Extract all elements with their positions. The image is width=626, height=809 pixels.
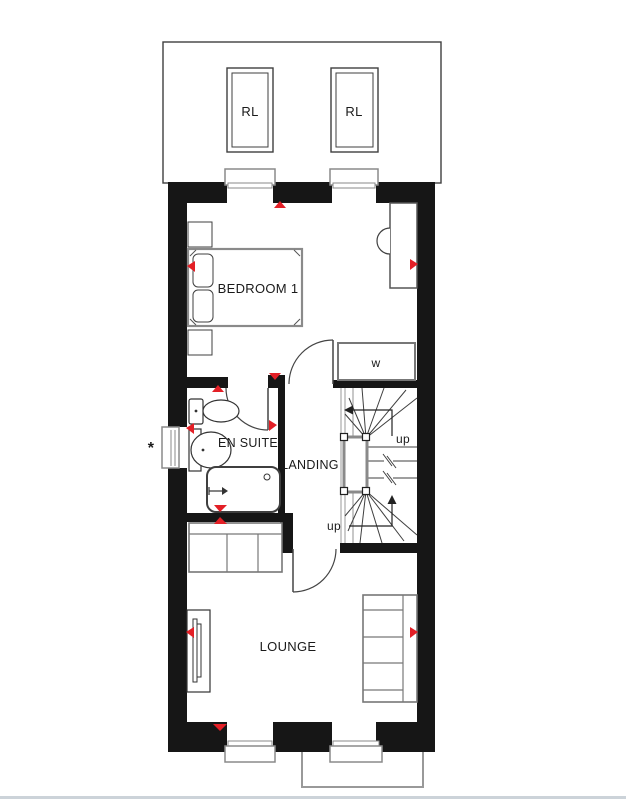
window-note-asterisk: *	[148, 440, 155, 457]
sofa-right	[363, 595, 417, 702]
wardrobe-label: w	[371, 356, 381, 370]
tv-unit	[187, 610, 210, 692]
floor-plan-page: RL RL	[0, 0, 626, 809]
marker-landing-wall	[269, 420, 277, 431]
stairs: up up	[327, 388, 417, 543]
ensuite-label: EN SUITE	[218, 436, 278, 450]
rooflight-2-label: RL	[345, 104, 362, 119]
footer-divider	[0, 796, 626, 799]
newel-post	[341, 434, 370, 495]
lounge-label: LOUNGE	[260, 639, 317, 654]
window-bedroom-left	[225, 169, 275, 203]
landing-label: LANDING	[281, 458, 339, 472]
rooflight-2: RL	[331, 68, 378, 152]
cupboard	[377, 203, 417, 288]
bath-drain	[264, 474, 270, 480]
rooflight-1: RL	[227, 68, 273, 152]
bedside-table-top	[188, 222, 212, 247]
window-bedroom-right	[330, 169, 378, 203]
bedside-table-bottom	[188, 330, 212, 355]
pillow	[193, 254, 213, 287]
toilet	[189, 399, 239, 424]
ensuite: EN SUITE	[189, 388, 280, 512]
floor-plan-svg: RL RL	[0, 0, 626, 809]
window-lounge-right	[330, 720, 382, 762]
pillow	[193, 290, 213, 322]
up-label-bottom: up	[327, 519, 341, 533]
up-label-top: up	[396, 432, 410, 446]
sofa-top	[189, 523, 282, 572]
wardrobe: w	[338, 343, 415, 380]
bedroom-door	[289, 340, 333, 384]
bedroom-label: BEDROOM 1	[218, 281, 299, 296]
window-lounge-left	[225, 720, 275, 762]
roof: RL RL	[163, 42, 441, 183]
rooflight-1-label: RL	[241, 104, 258, 119]
window-ensuite	[162, 427, 188, 468]
lounge-door	[293, 549, 336, 592]
